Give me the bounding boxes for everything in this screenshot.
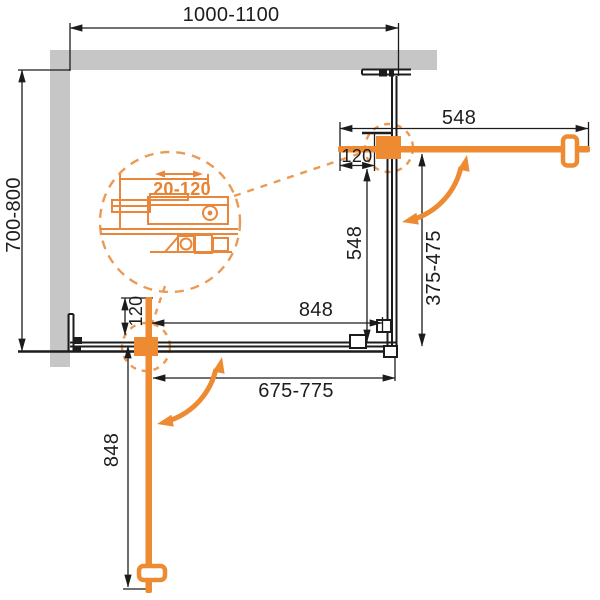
overall-depth-label: 700-800 xyxy=(4,177,24,253)
door-bottom-pivot-block xyxy=(134,337,158,356)
door-bottom-open-width-label: 848 xyxy=(102,433,122,467)
door-right-handle-icon xyxy=(563,137,577,166)
door-bottom-open xyxy=(134,297,165,593)
door-bottom-swing-arrow-icon xyxy=(157,357,225,427)
dimension-bottom-opening xyxy=(153,356,395,381)
door-right-swing-arrow-icon xyxy=(402,155,470,225)
top-offset-label: 120 xyxy=(342,147,373,165)
overall-width-label: 1000-1100 xyxy=(183,5,280,25)
wall-top xyxy=(50,50,437,70)
wall-left xyxy=(50,50,70,367)
side-panel-right-label: 375-475 xyxy=(424,230,444,306)
door-right-pivot-block xyxy=(376,136,401,159)
bottom-panel-width-label: 848 xyxy=(299,300,333,320)
door-bottom-handle-icon xyxy=(139,566,165,580)
door-right-open-width-label: 548 xyxy=(442,108,476,128)
technical-drawing: 1000-1100 700-800 548 120 548 375-475 84… xyxy=(0,0,600,600)
door-right-closed-width-label: 548 xyxy=(345,226,365,260)
bottom-opening-label: 675-775 xyxy=(258,381,334,401)
fixed-panel-right xyxy=(388,76,397,351)
dimension-bottom-panel xyxy=(152,317,383,331)
detail-adjustment-range-label: 20-120 xyxy=(153,180,211,198)
bottom-offset-label: 120 xyxy=(127,296,145,327)
screw-icon xyxy=(181,239,192,250)
